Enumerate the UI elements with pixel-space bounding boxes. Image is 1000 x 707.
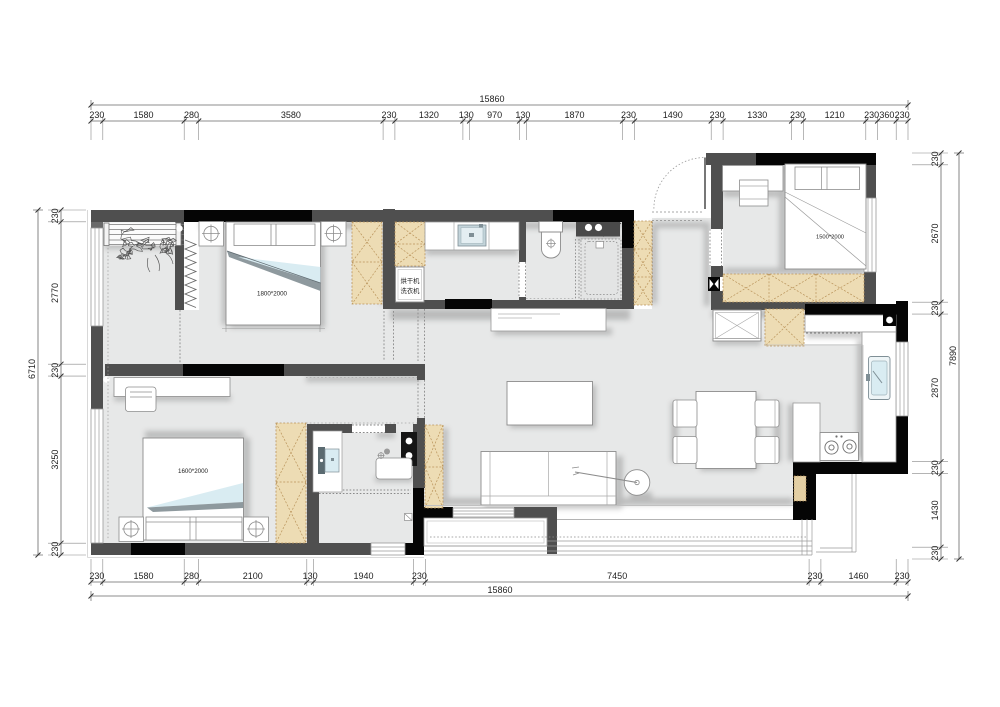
svg-text:6710: 6710 xyxy=(27,359,37,379)
svg-text:洗衣机: 洗衣机 xyxy=(401,286,421,295)
svg-text:1580: 1580 xyxy=(133,571,153,581)
svg-text:230: 230 xyxy=(50,208,60,223)
svg-text:1800*2000: 1800*2000 xyxy=(257,291,287,298)
svg-text:1320: 1320 xyxy=(419,110,439,120)
svg-text:1330: 1330 xyxy=(747,110,767,120)
svg-text:230: 230 xyxy=(50,542,60,557)
svg-text:230: 230 xyxy=(930,301,940,316)
svg-text:280: 280 xyxy=(184,110,199,120)
svg-text:230: 230 xyxy=(807,571,822,581)
svg-text:1490: 1490 xyxy=(663,110,683,120)
svg-text:3250: 3250 xyxy=(50,450,60,470)
svg-text:230: 230 xyxy=(895,571,910,581)
svg-text:230: 230 xyxy=(50,363,60,378)
svg-text:2770: 2770 xyxy=(50,283,60,303)
svg-text:230: 230 xyxy=(412,571,427,581)
svg-text:7450: 7450 xyxy=(607,571,627,581)
svg-text:1600*2000: 1600*2000 xyxy=(178,468,208,475)
svg-text:1500*2000: 1500*2000 xyxy=(816,235,844,241)
svg-text:2670: 2670 xyxy=(930,223,940,243)
svg-text:15860: 15860 xyxy=(479,94,504,104)
svg-text:2870: 2870 xyxy=(930,378,940,398)
svg-text:230: 230 xyxy=(381,110,396,120)
svg-text:230: 230 xyxy=(710,110,725,120)
svg-text:970: 970 xyxy=(487,110,502,120)
svg-text:230: 230 xyxy=(930,546,940,561)
svg-text:230: 230 xyxy=(89,571,104,581)
svg-text:2100: 2100 xyxy=(243,571,263,581)
svg-text:230: 230 xyxy=(621,110,636,120)
svg-text:130: 130 xyxy=(515,110,530,120)
svg-text:230: 230 xyxy=(930,460,940,475)
svg-text:280: 280 xyxy=(184,571,199,581)
svg-text:1430: 1430 xyxy=(930,500,940,520)
svg-text:1870: 1870 xyxy=(564,110,584,120)
svg-text:230: 230 xyxy=(864,110,879,120)
svg-text:230: 230 xyxy=(930,151,940,166)
svg-text:230: 230 xyxy=(895,110,910,120)
svg-text:15860: 15860 xyxy=(487,585,512,595)
svg-text:230: 230 xyxy=(790,110,805,120)
svg-text:360: 360 xyxy=(879,110,894,120)
svg-text:130: 130 xyxy=(459,110,474,120)
svg-text:1210: 1210 xyxy=(825,110,845,120)
svg-text:1460: 1460 xyxy=(848,571,868,581)
svg-text:烘干机: 烘干机 xyxy=(401,276,421,285)
svg-text:1580: 1580 xyxy=(133,110,153,120)
svg-text:130: 130 xyxy=(303,571,318,581)
svg-text:1940: 1940 xyxy=(353,571,373,581)
svg-text:230: 230 xyxy=(89,110,104,120)
svg-text:3580: 3580 xyxy=(281,110,301,120)
svg-text:7890: 7890 xyxy=(948,346,958,366)
